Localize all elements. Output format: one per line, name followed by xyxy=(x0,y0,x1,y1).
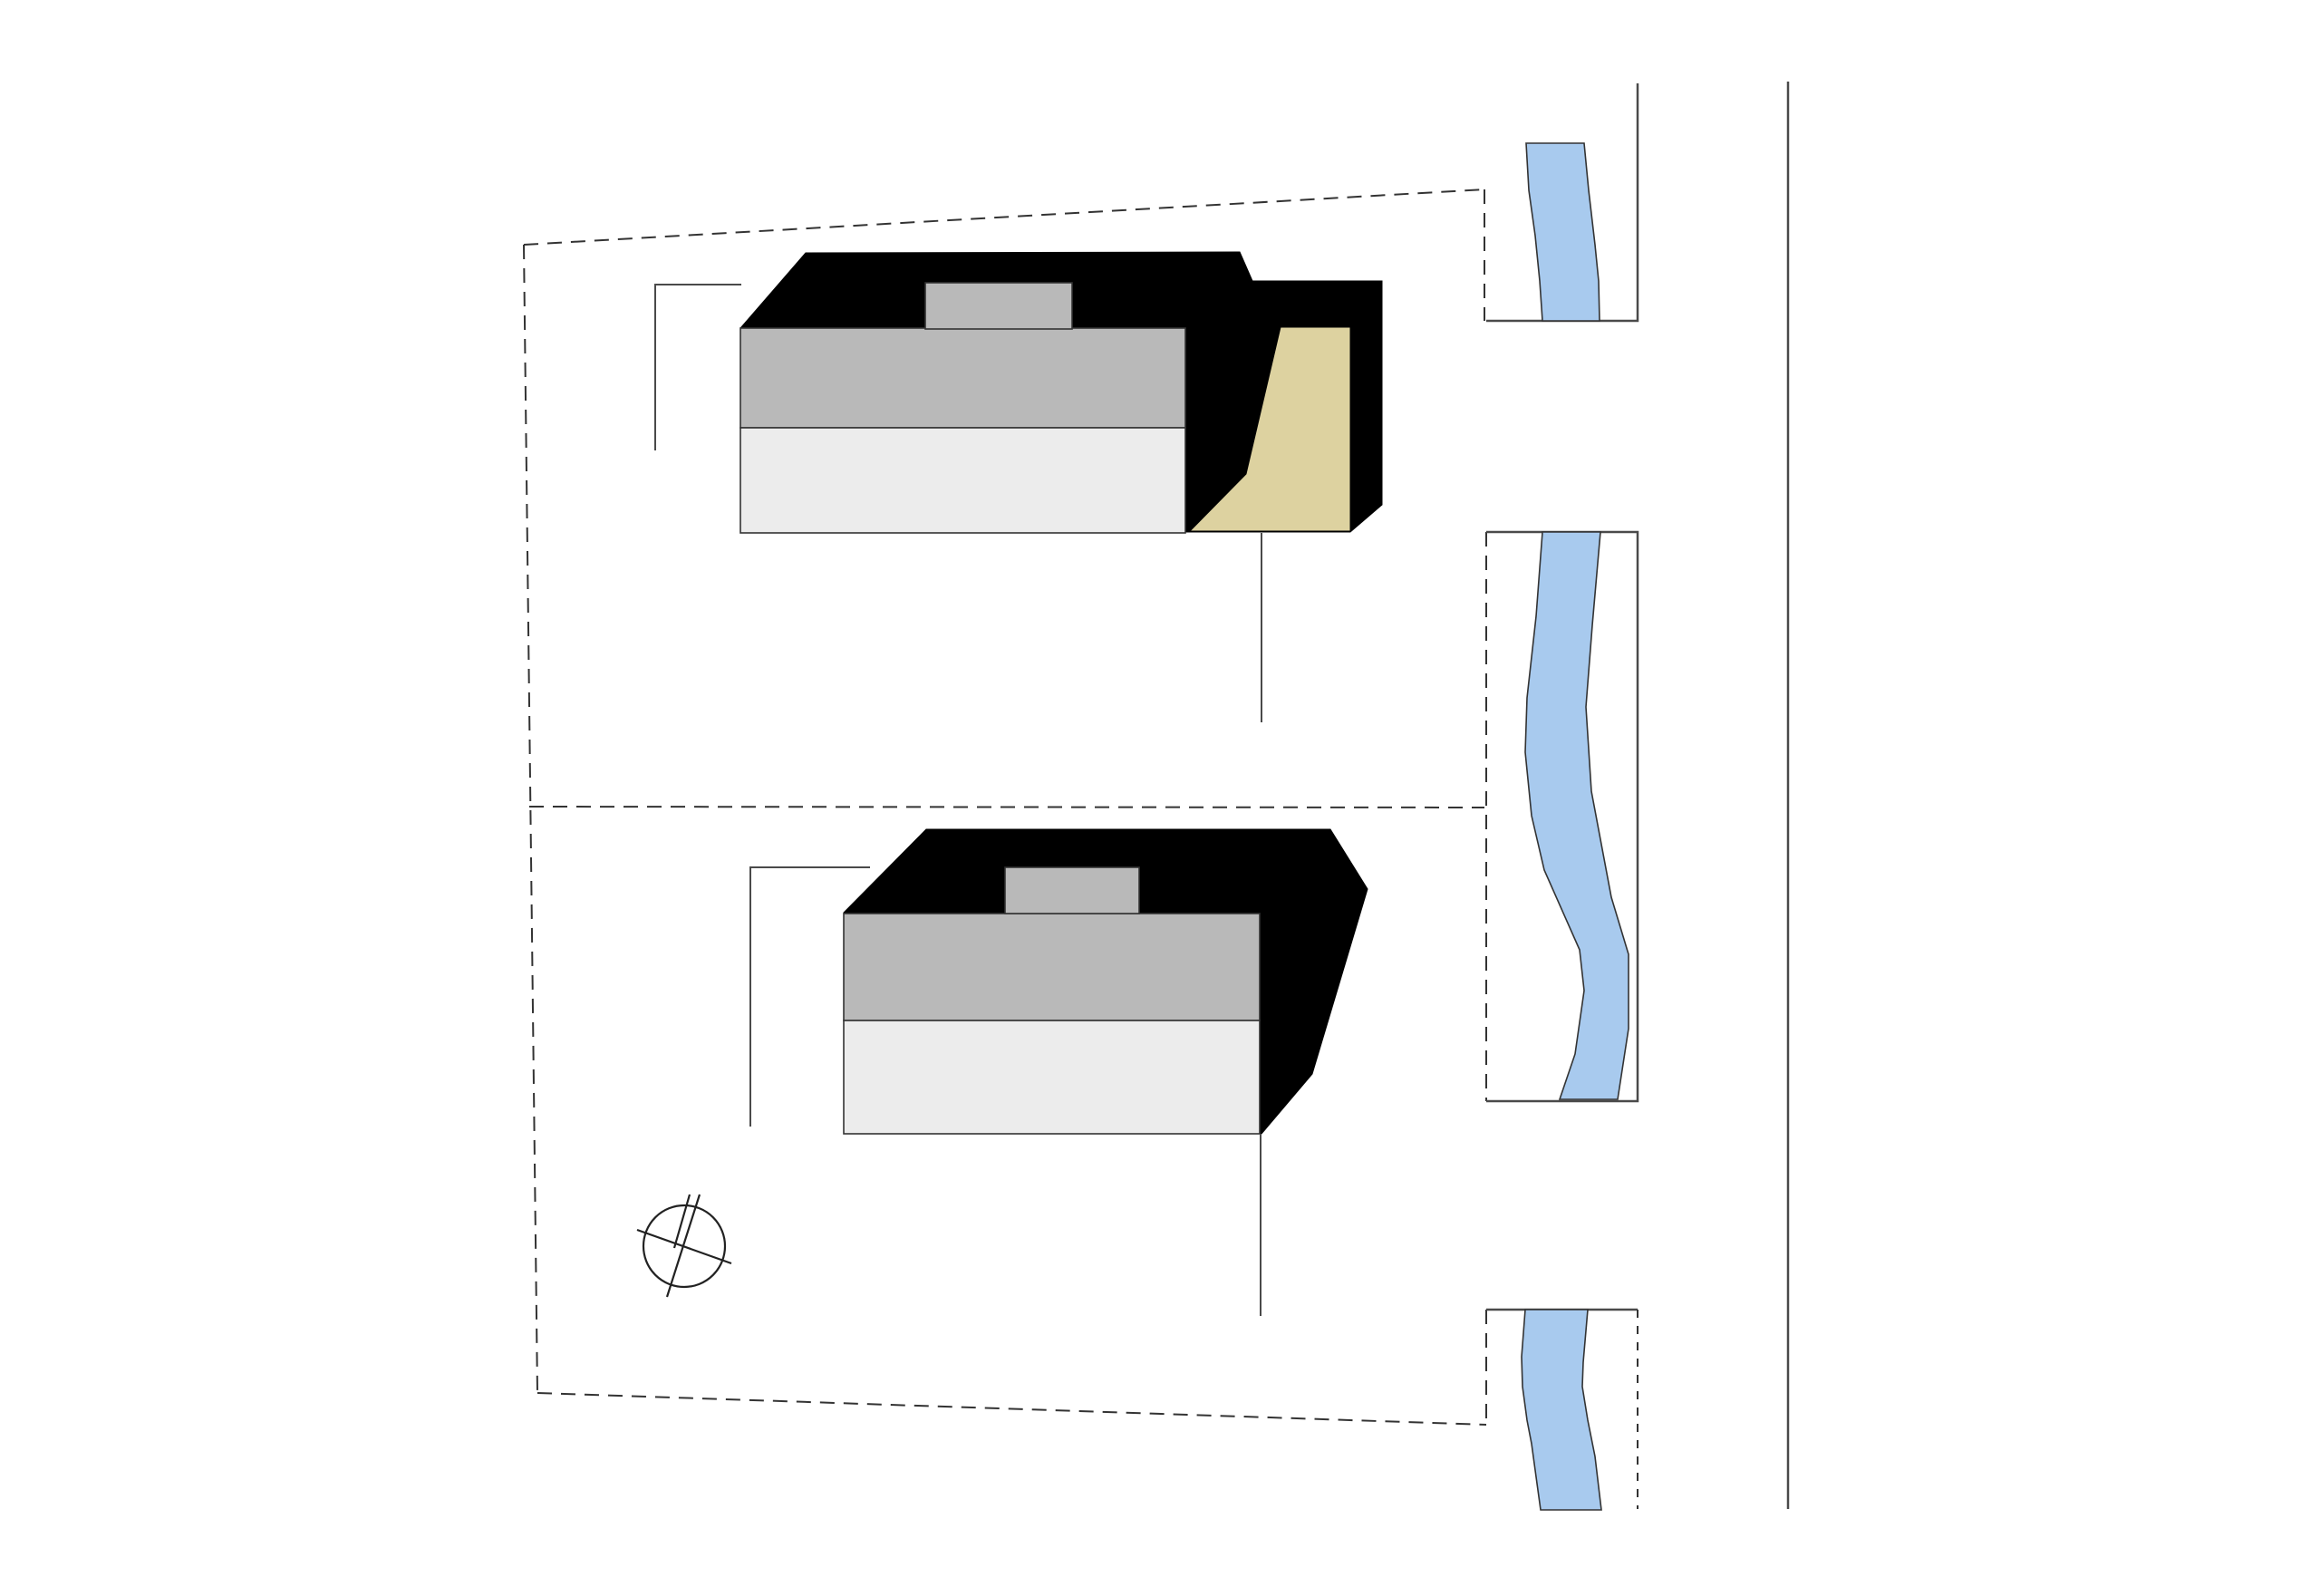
lot-divider-line xyxy=(529,807,1484,808)
house-lower-chimney xyxy=(1005,867,1139,914)
parcel-boundary-top xyxy=(524,189,1484,245)
site-plan-canvas xyxy=(0,0,2320,1596)
house-upper-base-band xyxy=(740,428,1185,533)
house-upper-wall-band xyxy=(740,328,1185,428)
house-lower-base-band xyxy=(844,1020,1260,1134)
stream-segment-bottom xyxy=(1522,1310,1601,1510)
house-upper-chimney xyxy=(925,283,1072,329)
stream-segment-middle xyxy=(1525,532,1629,1099)
survey-marker-cross-axis xyxy=(637,1230,731,1263)
setback-line-upper-lot xyxy=(655,285,741,450)
parcel-boundary-left xyxy=(524,245,537,1393)
stream-segment-top xyxy=(1526,143,1600,321)
survey-marker-axis-short xyxy=(674,1195,690,1248)
site-plan-drawing xyxy=(0,0,2320,1596)
parcel-boundary-bottom xyxy=(537,1393,1486,1425)
house-lower-wall-band xyxy=(844,914,1260,1020)
